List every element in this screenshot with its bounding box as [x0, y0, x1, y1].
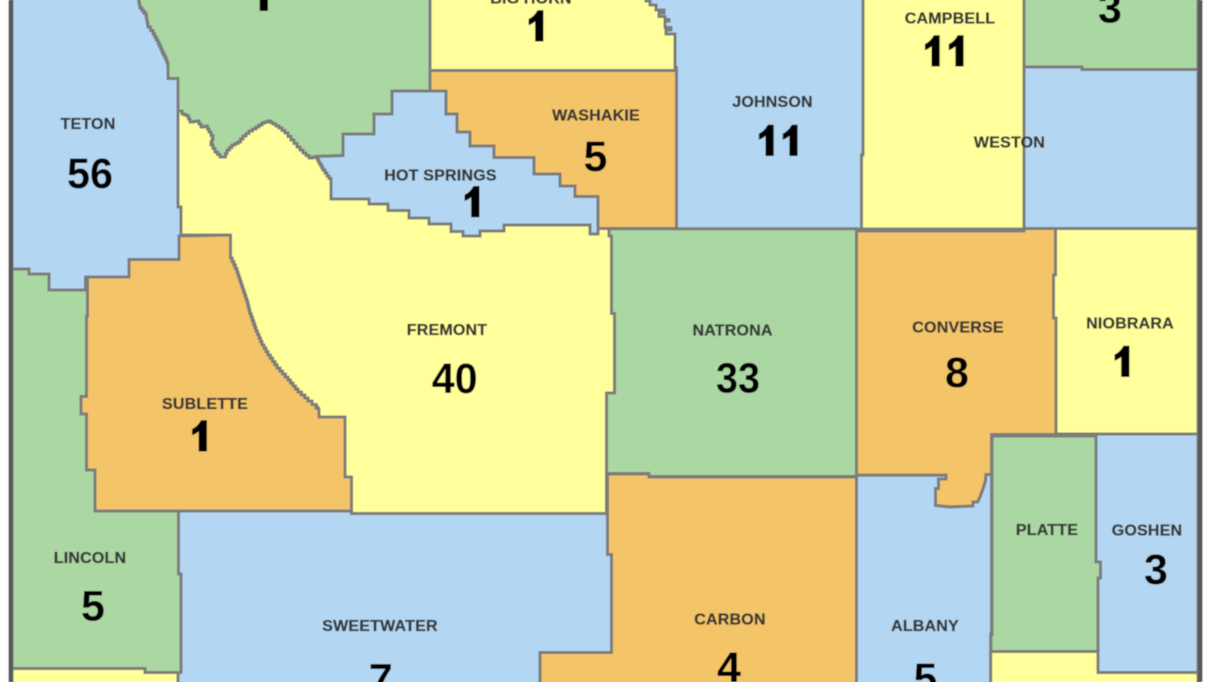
svg-text:HOT SPRINGS: HOT SPRINGS — [384, 168, 497, 185]
svg-text:SUBLETTE: SUBLETTE — [162, 396, 248, 413]
svg-text:GOSHEN: GOSHEN — [1112, 523, 1183, 540]
svg-text:NIOBRARA: NIOBRARA — [1086, 316, 1174, 333]
svg-text:LINCOLN: LINCOLN — [54, 550, 127, 567]
svg-text:SWEETWATER: SWEETWATER — [322, 618, 438, 635]
svg-text:WASHAKIE: WASHAKIE — [552, 108, 640, 125]
svg-text:5: 5 — [584, 133, 608, 181]
svg-text:56: 56 — [67, 150, 113, 198]
svg-text:TETON: TETON — [61, 116, 116, 133]
svg-text:7: 7 — [369, 656, 393, 682]
svg-text:JOHNSON: JOHNSON — [732, 94, 813, 111]
svg-text:CAMPBELL: CAMPBELL — [905, 11, 996, 28]
svg-text:BIG HORN: BIG HORN — [490, 0, 572, 8]
svg-text:NATRONA: NATRONA — [692, 323, 772, 340]
svg-text:33: 33 — [716, 355, 760, 403]
svg-text:CARBON: CARBON — [694, 611, 765, 628]
svg-text:40: 40 — [432, 355, 478, 403]
svg-text:5: 5 — [913, 655, 937, 682]
svg-text:5: 5 — [81, 583, 105, 631]
svg-text:WESTON: WESTON — [974, 135, 1045, 152]
svg-text:FREMONT: FREMONT — [407, 322, 488, 339]
svg-text:3: 3 — [1098, 0, 1122, 33]
svg-text:CONVERSE: CONVERSE — [912, 320, 1004, 337]
svg-text:8: 8 — [945, 349, 969, 397]
svg-text:PLATTE: PLATTE — [1016, 522, 1078, 539]
svg-text:ALBANY: ALBANY — [891, 618, 959, 635]
svg-text:3: 3 — [1144, 546, 1168, 594]
svg-text:4: 4 — [717, 644, 741, 682]
